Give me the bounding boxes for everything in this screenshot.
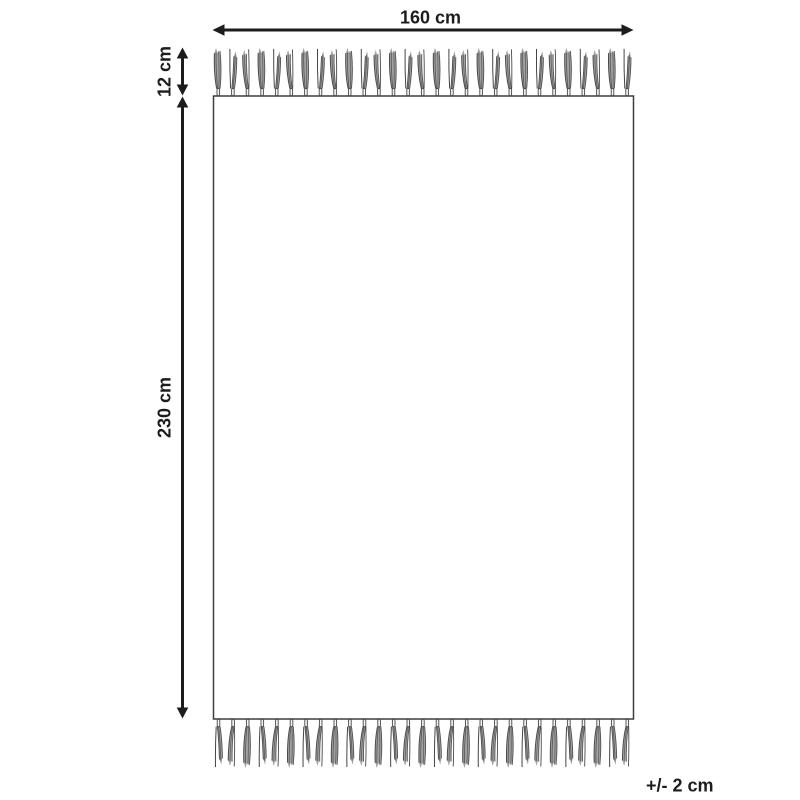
svg-text:+/- 2 cm: +/- 2 cm [646,776,714,796]
svg-text:12 cm: 12 cm [155,46,175,97]
svg-text:160 cm: 160 cm [400,8,461,28]
svg-text:230 cm: 230 cm [155,377,175,438]
